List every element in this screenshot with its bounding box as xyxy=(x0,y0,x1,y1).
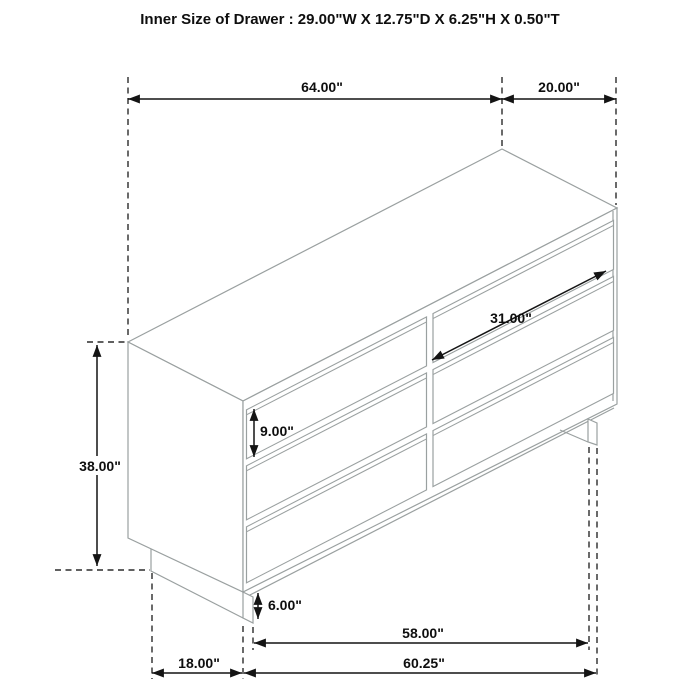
page-title: Inner Size of Drawer : 29.00"W X 12.75"D… xyxy=(140,11,559,28)
dim-base-depth-label: 18.00" xyxy=(178,655,220,671)
diagram-canvas: Inner Size of Drawer : 29.00"W X 12.75"D… xyxy=(0,0,700,700)
dim-depth-label: 20.00" xyxy=(538,79,580,95)
dim-overall-width-label: 64.00" xyxy=(301,79,343,95)
dim-base-inner-label: 58.00" xyxy=(402,625,444,641)
dim-base-width-label: 60.25" xyxy=(403,655,445,671)
dresser-drawing xyxy=(128,149,617,623)
plinth-right-line xyxy=(560,430,588,442)
front-left-leg xyxy=(243,592,253,623)
dresser-dimension-diagram: Inner Size of Drawer : 29.00"W X 12.75"D… xyxy=(0,0,700,700)
dim-base-height-label: 6.00" xyxy=(268,597,302,613)
dim-drawer-width-label: 31.00" xyxy=(490,310,532,326)
dim-overall-height-label: 38.00" xyxy=(79,458,121,474)
dim-drawer-height-label: 9.00" xyxy=(260,423,294,439)
front-right-leg xyxy=(588,419,597,445)
